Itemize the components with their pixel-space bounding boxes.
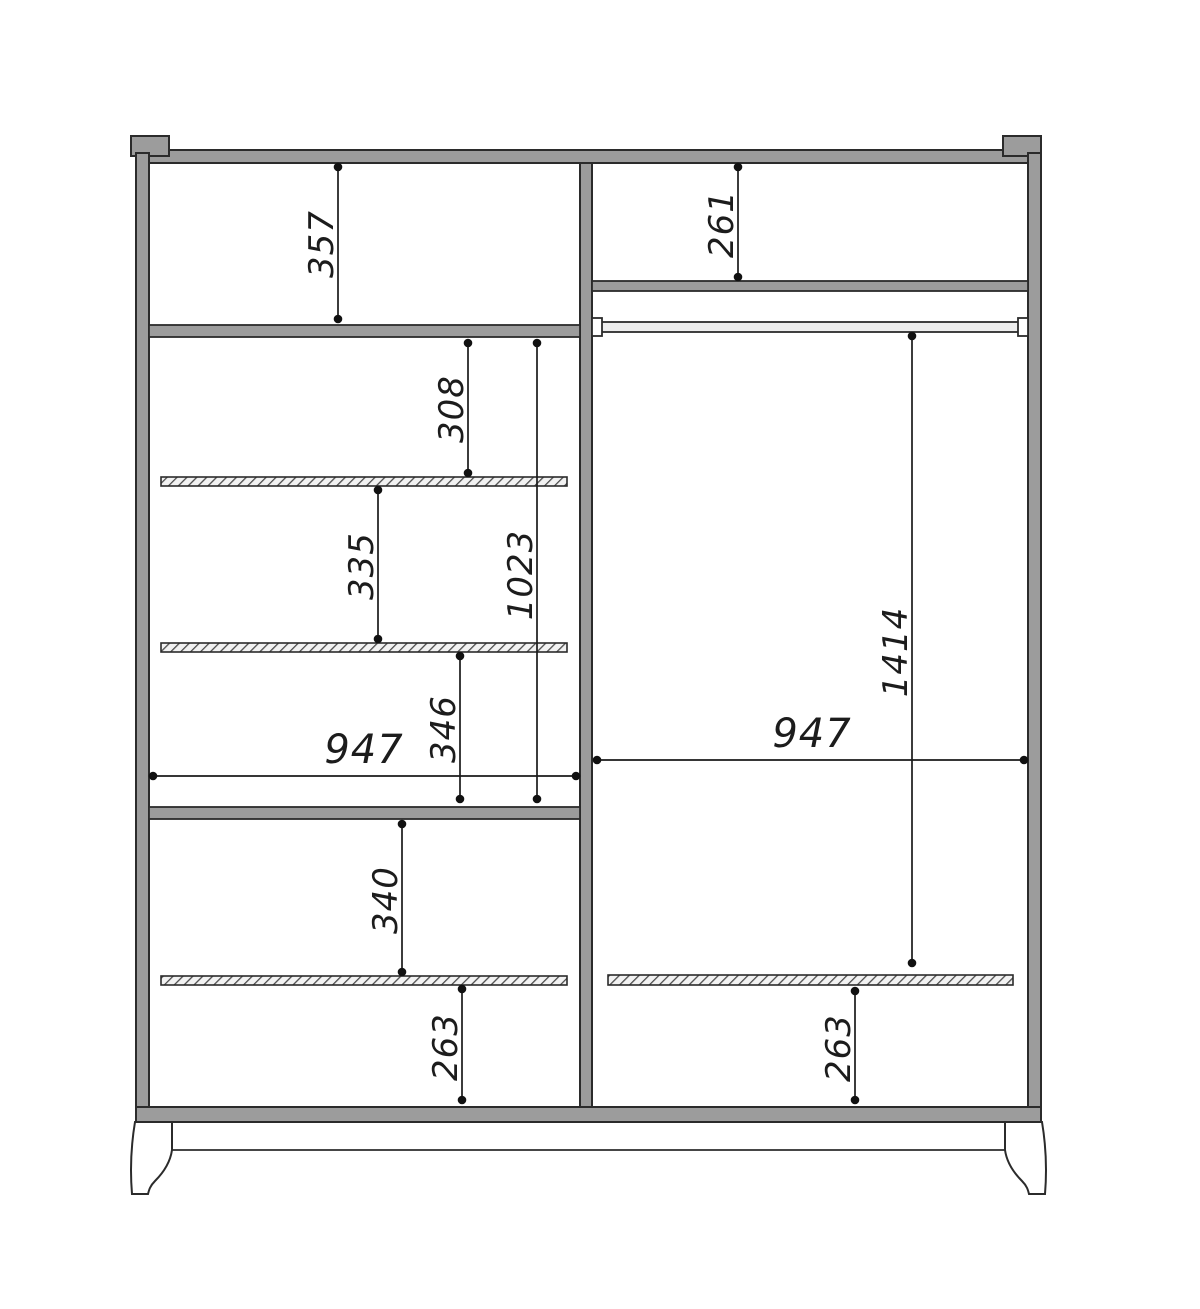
dimension-endpoint-dot — [1020, 756, 1029, 765]
left-fixed-panel-mid — [149, 807, 580, 819]
center-divider — [580, 163, 592, 1107]
dimension-endpoint-dot — [398, 820, 407, 829]
dimension-endpoint-dot — [334, 163, 343, 172]
dimension-endpoint-dot — [464, 469, 473, 478]
left-adjustable-shelf-1 — [161, 477, 567, 486]
dimension-endpoint-dot — [458, 1096, 467, 1105]
dimension-endpoint-dot — [851, 987, 860, 996]
hanging-rod-bracket-right — [1018, 318, 1028, 336]
left-adjustable-shelf-2 — [161, 643, 567, 652]
dimension-endpoint-dot — [334, 315, 343, 324]
dimension-label: 357 — [302, 210, 342, 278]
dimension-endpoint-dot — [149, 772, 158, 781]
dimension-label: 335 — [342, 532, 382, 600]
dimension-label: 346 — [424, 695, 464, 763]
dimension-label: 947 — [324, 727, 403, 773]
dimension-endpoint-dot — [593, 756, 602, 765]
bottom-panel — [136, 1107, 1041, 1122]
dimension-label: 261 — [702, 190, 742, 258]
dimension-endpoint-dot — [464, 339, 473, 348]
wardrobe-dimension-diagram: 357 308 1023 335 346 — [0, 0, 1200, 1309]
dimension-label: 1414 — [876, 607, 916, 698]
dimension-label: 340 — [366, 866, 406, 934]
dimension-label: 308 — [432, 375, 472, 443]
dimension-endpoint-dot — [456, 652, 465, 661]
dimension-label: 947 — [772, 711, 851, 757]
left-fixed-shelf-top — [149, 325, 580, 337]
dimension-label: 1023 — [501, 530, 541, 621]
side-panel-right — [1028, 153, 1041, 1107]
dimension-endpoint-dot — [374, 635, 383, 644]
dimension-endpoint-dot — [374, 486, 383, 495]
dimension-endpoint-dot — [851, 1096, 860, 1105]
dimension-label: 263 — [426, 1013, 466, 1081]
left-adjustable-shelf-3 — [161, 976, 567, 985]
dimension-endpoint-dot — [456, 795, 465, 804]
dimension-label: 263 — [819, 1014, 859, 1082]
dimension-endpoint-dot — [734, 163, 743, 172]
dimension-endpoint-dot — [908, 332, 917, 341]
dimension-endpoint-dot — [533, 339, 542, 348]
dimension-endpoint-dot — [908, 959, 917, 968]
dimension-endpoint-dot — [533, 795, 542, 804]
dimension-endpoint-dot — [458, 985, 467, 994]
right-adjustable-shelf — [608, 975, 1013, 985]
dimension-endpoint-dot — [572, 772, 581, 781]
hanging-rod-bar — [600, 322, 1020, 332]
right-fixed-shelf-top — [592, 281, 1028, 291]
hanging-rod-bracket-left — [592, 318, 602, 336]
dimension-endpoint-dot — [398, 968, 407, 977]
side-panel-left — [136, 153, 149, 1107]
dimension-endpoint-dot — [734, 273, 743, 282]
top-panel — [140, 150, 1037, 163]
drawing-canvas: 357 308 1023 335 346 — [0, 0, 1200, 1309]
